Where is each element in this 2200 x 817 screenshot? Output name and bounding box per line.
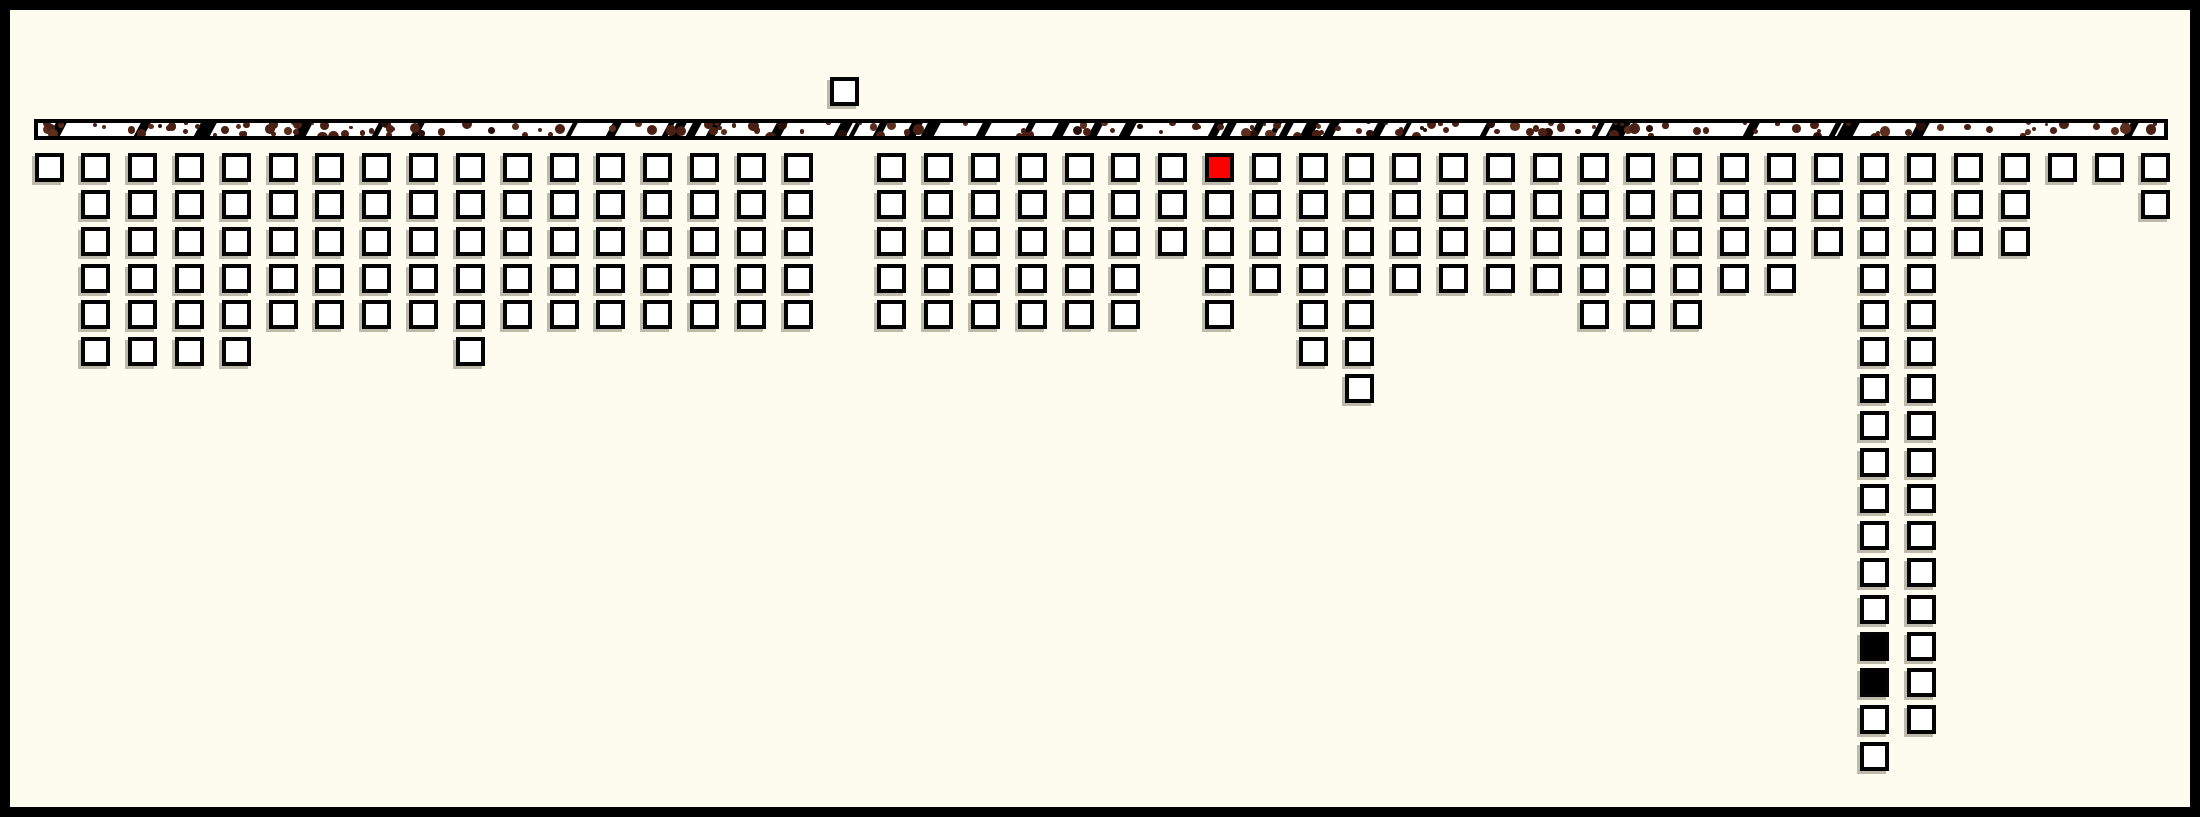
bar-dot-mark xyxy=(676,126,687,137)
bar-dot-mark xyxy=(1420,126,1424,130)
cell-c29-r2 xyxy=(1345,190,1374,219)
bar-dot-mark xyxy=(284,127,291,134)
cell-c4-r2 xyxy=(175,190,204,219)
cell-c9-r2 xyxy=(409,190,438,219)
cell-c40-r9 xyxy=(1860,448,1889,477)
cell-c24-r5 xyxy=(1111,300,1140,329)
cell-c32-r1 xyxy=(1486,153,1515,182)
cell-c11-r2 xyxy=(503,190,532,219)
above-ground-cell-c18 xyxy=(830,77,859,106)
cell-c35-r2 xyxy=(1626,190,1655,219)
bar-dot-mark xyxy=(721,129,727,135)
cell-c1-r1 xyxy=(35,153,64,182)
bar-dot-mark xyxy=(1575,129,1581,135)
cell-c4-r3 xyxy=(175,227,204,256)
bar-dot-mark xyxy=(183,129,188,134)
cell-c16-r3 xyxy=(737,227,766,256)
cell-c40-r6 xyxy=(1860,337,1889,366)
red-cell-c26-r1 xyxy=(1205,153,1234,182)
bar-dot-mark xyxy=(1792,124,1801,133)
bar-dot-mark xyxy=(512,123,519,130)
cell-c35-r1 xyxy=(1626,153,1655,182)
cell-c12-r5 xyxy=(550,300,579,329)
bar-dot-mark xyxy=(291,119,296,124)
cell-c27-r4 xyxy=(1252,264,1281,293)
bar-dot-mark xyxy=(1964,124,1971,131)
cell-c17-r1 xyxy=(784,153,813,182)
bar-dot-mark xyxy=(1412,132,1421,140)
cell-c28-r5 xyxy=(1299,300,1328,329)
cell-c30-r4 xyxy=(1392,264,1421,293)
cell-c14-r1 xyxy=(643,153,672,182)
cell-c23-r5 xyxy=(1065,300,1094,329)
cell-c31-r4 xyxy=(1439,264,1468,293)
cell-c40-r8 xyxy=(1860,411,1889,440)
cell-c34-r5 xyxy=(1580,300,1609,329)
cell-c35-r4 xyxy=(1626,264,1655,293)
bar-dot-mark xyxy=(748,121,759,132)
cell-c40-r10 xyxy=(1860,484,1889,513)
cell-c24-r3 xyxy=(1111,227,1140,256)
cell-c28-r3 xyxy=(1299,227,1328,256)
cell-c40-r2 xyxy=(1860,190,1889,219)
bar-dot-mark xyxy=(913,124,924,135)
bar-dot-mark xyxy=(488,127,495,134)
cell-c20-r1 xyxy=(924,153,953,182)
bar-dot-mark xyxy=(1538,128,1547,137)
cell-c34-r4 xyxy=(1580,264,1609,293)
cell-c43-r1 xyxy=(2001,153,2030,182)
cell-c10-r3 xyxy=(456,227,485,256)
bar-dot-mark xyxy=(271,132,276,137)
cell-c26-r5 xyxy=(1205,300,1234,329)
cell-c30-r1 xyxy=(1392,153,1421,182)
bar-dot-mark xyxy=(963,121,968,126)
cell-c41-r16 xyxy=(1907,705,1936,734)
bar-dot-mark xyxy=(1629,123,1640,134)
cell-c35-r3 xyxy=(1626,227,1655,256)
cell-c6-r5 xyxy=(269,300,298,329)
cell-c7-r1 xyxy=(315,153,344,182)
cell-c12-r1 xyxy=(550,153,579,182)
cell-c33-r2 xyxy=(1533,190,1562,219)
bar-dot-mark xyxy=(1880,126,1891,137)
cell-c15-r4 xyxy=(690,264,719,293)
cell-c4-r6 xyxy=(175,337,204,366)
bar-dot-mark xyxy=(48,129,58,139)
cell-c2-r2 xyxy=(81,190,110,219)
cell-c19-r4 xyxy=(877,264,906,293)
bar-dot-mark xyxy=(381,120,388,127)
bar-dot-mark xyxy=(1366,130,1373,137)
cell-c31-r3 xyxy=(1439,227,1468,256)
bar-dot-mark xyxy=(714,120,720,126)
bar-dot-mark xyxy=(732,123,736,127)
cell-c8-r1 xyxy=(362,153,391,182)
bar-dot-mark xyxy=(538,128,542,132)
cell-c43-r3 xyxy=(2001,227,2030,256)
cell-c10-r2 xyxy=(456,190,485,219)
cell-c31-r1 xyxy=(1439,153,1468,182)
cell-c28-r4 xyxy=(1299,264,1328,293)
cell-c4-r1 xyxy=(175,153,204,182)
cell-c9-r1 xyxy=(409,153,438,182)
bar-dot-mark xyxy=(148,124,154,130)
cell-c22-r3 xyxy=(1018,227,1047,256)
cell-c42-r3 xyxy=(1954,227,1983,256)
bar-dot-mark xyxy=(158,124,162,128)
cell-c19-r1 xyxy=(877,153,906,182)
cell-c21-r5 xyxy=(971,300,1000,329)
cell-c38-r4 xyxy=(1767,264,1796,293)
bar-dot-mark xyxy=(184,122,188,126)
cell-c29-r7 xyxy=(1345,374,1374,403)
cell-c15-r2 xyxy=(690,190,719,219)
bar-dot-mark xyxy=(1438,122,1443,127)
cell-c44-r1 xyxy=(2048,153,2077,182)
bar-dot-mark xyxy=(870,123,878,131)
cell-c28-r1 xyxy=(1299,153,1328,182)
cell-c39-r3 xyxy=(1814,227,1843,256)
cell-c5-r4 xyxy=(222,264,251,293)
cell-c40-r11 xyxy=(1860,521,1889,550)
bar-dot-mark xyxy=(462,119,472,129)
bar-dot-mark xyxy=(341,130,349,138)
bar-dot-mark xyxy=(1870,133,1881,140)
cell-c24-r4 xyxy=(1111,264,1140,293)
cell-c2-r5 xyxy=(81,300,110,329)
cell-c41-r10 xyxy=(1907,484,1936,513)
cell-c40-r1 xyxy=(1860,153,1889,182)
cell-c10-r4 xyxy=(456,264,485,293)
cell-c38-r3 xyxy=(1767,227,1796,256)
bar-dot-mark xyxy=(1557,123,1566,132)
cell-c8-r3 xyxy=(362,227,391,256)
bar-dot-mark xyxy=(2025,129,2031,135)
bar-dot-mark xyxy=(1648,133,1654,139)
cell-c25-r3 xyxy=(1158,227,1187,256)
cell-c33-r3 xyxy=(1533,227,1562,256)
bar-dot-mark xyxy=(320,121,329,130)
bar-dot-mark xyxy=(1384,121,1388,125)
cell-c22-r5 xyxy=(1018,300,1047,329)
bar-dot-mark xyxy=(195,124,200,129)
cell-c2-r1 xyxy=(81,153,110,182)
bar-dot-mark xyxy=(102,125,107,130)
bar-dot-mark xyxy=(1986,126,1993,133)
bar-dot-mark xyxy=(838,130,847,139)
bar-dot-mark xyxy=(2165,128,2168,133)
bar-dot-mark xyxy=(2093,123,2100,130)
bar-dot-mark xyxy=(904,129,910,135)
bar-dot-mark xyxy=(1937,124,1944,131)
cell-c27-r1 xyxy=(1252,153,1281,182)
bar-dot-mark xyxy=(1241,128,1251,138)
cell-c40-r3 xyxy=(1860,227,1889,256)
bar-dot-mark xyxy=(1487,120,1494,127)
cell-c13-r1 xyxy=(596,153,625,182)
cell-c23-r4 xyxy=(1065,264,1094,293)
cell-c2-r4 xyxy=(81,264,110,293)
cell-c11-r4 xyxy=(503,264,532,293)
bar-dot-mark xyxy=(1494,129,1500,135)
cell-c26-r4 xyxy=(1205,264,1234,293)
bar-dot-mark xyxy=(317,132,327,140)
cell-c7-r3 xyxy=(315,227,344,256)
cell-c33-r4 xyxy=(1533,264,1562,293)
bar-dot-mark xyxy=(1250,125,1254,129)
cell-c41-r6 xyxy=(1907,337,1936,366)
cell-c13-r5 xyxy=(596,300,625,329)
bar-dot-mark xyxy=(858,121,862,125)
cell-c41-r5 xyxy=(1907,300,1936,329)
bar-dot-mark xyxy=(1693,127,1701,135)
bar-dot-mark xyxy=(236,124,241,129)
bar-dot-mark xyxy=(47,123,52,128)
cell-c41-r3 xyxy=(1907,227,1936,256)
cell-c37-r3 xyxy=(1720,227,1749,256)
bar-dot-mark xyxy=(386,132,392,138)
cell-c38-r2 xyxy=(1767,190,1796,219)
bar-dot-mark xyxy=(242,131,248,137)
bar-dot-mark xyxy=(58,120,63,125)
cell-c15-r5 xyxy=(690,300,719,329)
cell-c6-r4 xyxy=(269,264,298,293)
cell-c36-r3 xyxy=(1673,227,1702,256)
cell-c36-r1 xyxy=(1673,153,1702,182)
cell-c12-r3 xyxy=(550,227,579,256)
cell-c46-r1 xyxy=(2141,153,2170,182)
cell-c41-r7 xyxy=(1907,374,1936,403)
bar-dot-mark xyxy=(2032,127,2036,131)
bar-dot-mark xyxy=(876,131,885,140)
bar-dot-mark xyxy=(765,132,776,140)
cell-c5-r3 xyxy=(222,227,251,256)
bar-dot-mark xyxy=(1427,120,1436,129)
bar-dot-mark xyxy=(2153,122,2157,126)
cell-c9-r5 xyxy=(409,300,438,329)
cell-c29-r5 xyxy=(1345,300,1374,329)
cell-c2-r3 xyxy=(81,227,110,256)
cell-c35-r5 xyxy=(1626,300,1655,329)
bar-dot-mark xyxy=(2050,127,2056,133)
bar-dot-mark xyxy=(349,126,353,130)
cell-c14-r5 xyxy=(643,300,672,329)
cell-c40-r4 xyxy=(1860,264,1889,293)
cell-c22-r4 xyxy=(1018,264,1047,293)
cell-c25-r1 xyxy=(1158,153,1187,182)
cell-c34-r2 xyxy=(1580,190,1609,219)
bar-slash-mark xyxy=(684,121,702,139)
bar-dot-mark xyxy=(2059,120,2069,130)
cell-c41-r8 xyxy=(1907,411,1936,440)
bar-slash-mark xyxy=(1050,121,1070,139)
cell-c32-r3 xyxy=(1486,227,1515,256)
cell-c36-r5 xyxy=(1673,300,1702,329)
bar-dot-mark xyxy=(1916,121,1926,131)
cell-c39-r2 xyxy=(1814,190,1843,219)
cell-c7-r2 xyxy=(315,190,344,219)
cell-c20-r5 xyxy=(924,300,953,329)
cell-c32-r2 xyxy=(1486,190,1515,219)
cell-c3-r5 xyxy=(128,300,157,329)
cell-c43-r2 xyxy=(2001,190,2030,219)
cell-c3-r2 xyxy=(128,190,157,219)
cell-c2-r6 xyxy=(81,337,110,366)
cell-c28-r6 xyxy=(1299,337,1328,366)
bar-dot-mark xyxy=(168,122,176,130)
bar-dot-mark xyxy=(647,125,657,135)
bar-dot-mark xyxy=(1312,131,1321,140)
black-cell-c40-r14 xyxy=(1860,632,1889,661)
cell-c40-r12 xyxy=(1860,558,1889,587)
cell-c14-r4 xyxy=(643,264,672,293)
bar-dot-mark xyxy=(137,129,146,138)
cell-c23-r3 xyxy=(1065,227,1094,256)
bar-dot-mark xyxy=(2111,127,2119,135)
cell-c37-r4 xyxy=(1720,264,1749,293)
cell-c20-r3 xyxy=(924,227,953,256)
cell-c5-r6 xyxy=(222,337,251,366)
cell-c5-r2 xyxy=(222,190,251,219)
cell-c16-r5 xyxy=(737,300,766,329)
cell-c11-r1 xyxy=(503,153,532,182)
cell-c17-r5 xyxy=(784,300,813,329)
cell-c39-r1 xyxy=(1814,153,1843,182)
bar-dot-mark xyxy=(243,122,250,129)
cell-c9-r3 xyxy=(409,227,438,256)
cell-c41-r12 xyxy=(1907,558,1936,587)
cell-c24-r1 xyxy=(1111,153,1140,182)
cell-c29-r4 xyxy=(1345,264,1374,293)
cell-c13-r3 xyxy=(596,227,625,256)
cell-c29-r3 xyxy=(1345,227,1374,256)
cell-c13-r4 xyxy=(596,264,625,293)
bar-dot-mark xyxy=(709,127,718,136)
bar-dot-mark xyxy=(438,128,445,135)
cell-c25-r2 xyxy=(1158,190,1187,219)
bar-dot-mark xyxy=(1101,119,1107,125)
cell-c41-r14 xyxy=(1907,632,1936,661)
cell-c22-r2 xyxy=(1018,190,1047,219)
black-cell-c40-r15 xyxy=(1860,668,1889,697)
cell-c40-r17 xyxy=(1860,742,1889,771)
bar-dot-mark xyxy=(1810,121,1818,129)
bar-dot-mark xyxy=(1366,119,1371,124)
cell-c23-r1 xyxy=(1065,153,1094,182)
cell-c41-r1 xyxy=(1907,153,1936,182)
cell-c5-r5 xyxy=(222,300,251,329)
bar-slash-mark xyxy=(974,121,993,139)
cell-c40-r7 xyxy=(1860,374,1889,403)
bar-dot-mark xyxy=(1110,128,1115,133)
cell-c46-r2 xyxy=(2141,190,2170,219)
cell-c30-r3 xyxy=(1392,227,1421,256)
cell-c21-r1 xyxy=(971,153,1000,182)
cell-c12-r2 xyxy=(550,190,579,219)
bar-dot-mark xyxy=(221,126,229,134)
cell-c41-r2 xyxy=(1907,190,1936,219)
bar-dot-mark xyxy=(1073,126,1082,135)
bar-dot-mark xyxy=(887,121,896,130)
cell-c40-r16 xyxy=(1860,705,1889,734)
bar-dot-mark xyxy=(1743,121,1747,125)
bar-dot-mark xyxy=(635,121,642,128)
cell-c41-r15 xyxy=(1907,668,1936,697)
cell-c14-r2 xyxy=(643,190,672,219)
cell-c19-r3 xyxy=(877,227,906,256)
cell-c40-r13 xyxy=(1860,595,1889,624)
cell-c41-r9 xyxy=(1907,448,1936,477)
cell-c17-r3 xyxy=(784,227,813,256)
cell-c3-r6 xyxy=(128,337,157,366)
bar-dot-mark xyxy=(555,124,565,134)
cell-c3-r4 xyxy=(128,264,157,293)
cell-c7-r5 xyxy=(315,300,344,329)
cell-c37-r1 xyxy=(1720,153,1749,182)
cell-c13-r2 xyxy=(596,190,625,219)
bar-dot-mark xyxy=(1548,120,1554,126)
bar-dot-mark xyxy=(522,132,528,138)
cell-c11-r3 xyxy=(503,227,532,256)
cell-c36-r2 xyxy=(1673,190,1702,219)
bar-dot-mark xyxy=(2045,123,2049,127)
bar-dot-mark xyxy=(1273,122,1281,130)
cell-c16-r2 xyxy=(737,190,766,219)
bar-dot-mark xyxy=(1510,121,1520,131)
cell-c37-r2 xyxy=(1720,190,1749,219)
cell-c20-r2 xyxy=(924,190,953,219)
bar-dot-mark xyxy=(826,121,831,126)
cell-c10-r6 xyxy=(456,337,485,366)
cell-c15-r1 xyxy=(690,153,719,182)
cell-c8-r5 xyxy=(362,300,391,329)
cell-c38-r1 xyxy=(1767,153,1796,182)
bar-dot-mark xyxy=(418,130,424,136)
bar-dot-mark xyxy=(1775,122,1780,127)
cell-c31-r2 xyxy=(1439,190,1468,219)
cell-c24-r2 xyxy=(1111,190,1140,219)
cell-c28-r2 xyxy=(1299,190,1328,219)
bar-dot-mark xyxy=(311,121,315,125)
bar-dot-mark xyxy=(1137,124,1143,130)
bar-dot-mark xyxy=(1452,119,1459,126)
cell-c27-r3 xyxy=(1252,227,1281,256)
cell-c7-r4 xyxy=(315,264,344,293)
bar-dot-mark xyxy=(548,132,553,137)
cell-c6-r2 xyxy=(269,190,298,219)
cell-c9-r4 xyxy=(409,264,438,293)
cell-c29-r6 xyxy=(1345,337,1374,366)
cell-c10-r1 xyxy=(456,153,485,182)
bar-dot-mark xyxy=(328,131,339,140)
bar-dot-mark xyxy=(1646,125,1653,132)
cell-c19-r5 xyxy=(877,300,906,329)
bar-dot-mark xyxy=(1159,130,1163,134)
bar-slash-mark xyxy=(564,121,579,139)
bar-dot-mark xyxy=(1273,132,1277,136)
bar-dot-mark xyxy=(1753,129,1758,134)
cell-c40-r5 xyxy=(1860,300,1889,329)
cell-c30-r2 xyxy=(1392,190,1421,219)
bar-dot-mark xyxy=(1662,122,1668,128)
cell-c11-r5 xyxy=(503,300,532,329)
cell-c45-r1 xyxy=(2095,153,2124,182)
bar-dot-mark xyxy=(93,123,97,127)
bar-dot-mark xyxy=(1197,125,1201,129)
cell-c41-r4 xyxy=(1907,264,1936,293)
speckled-ground-bar xyxy=(34,119,2168,140)
